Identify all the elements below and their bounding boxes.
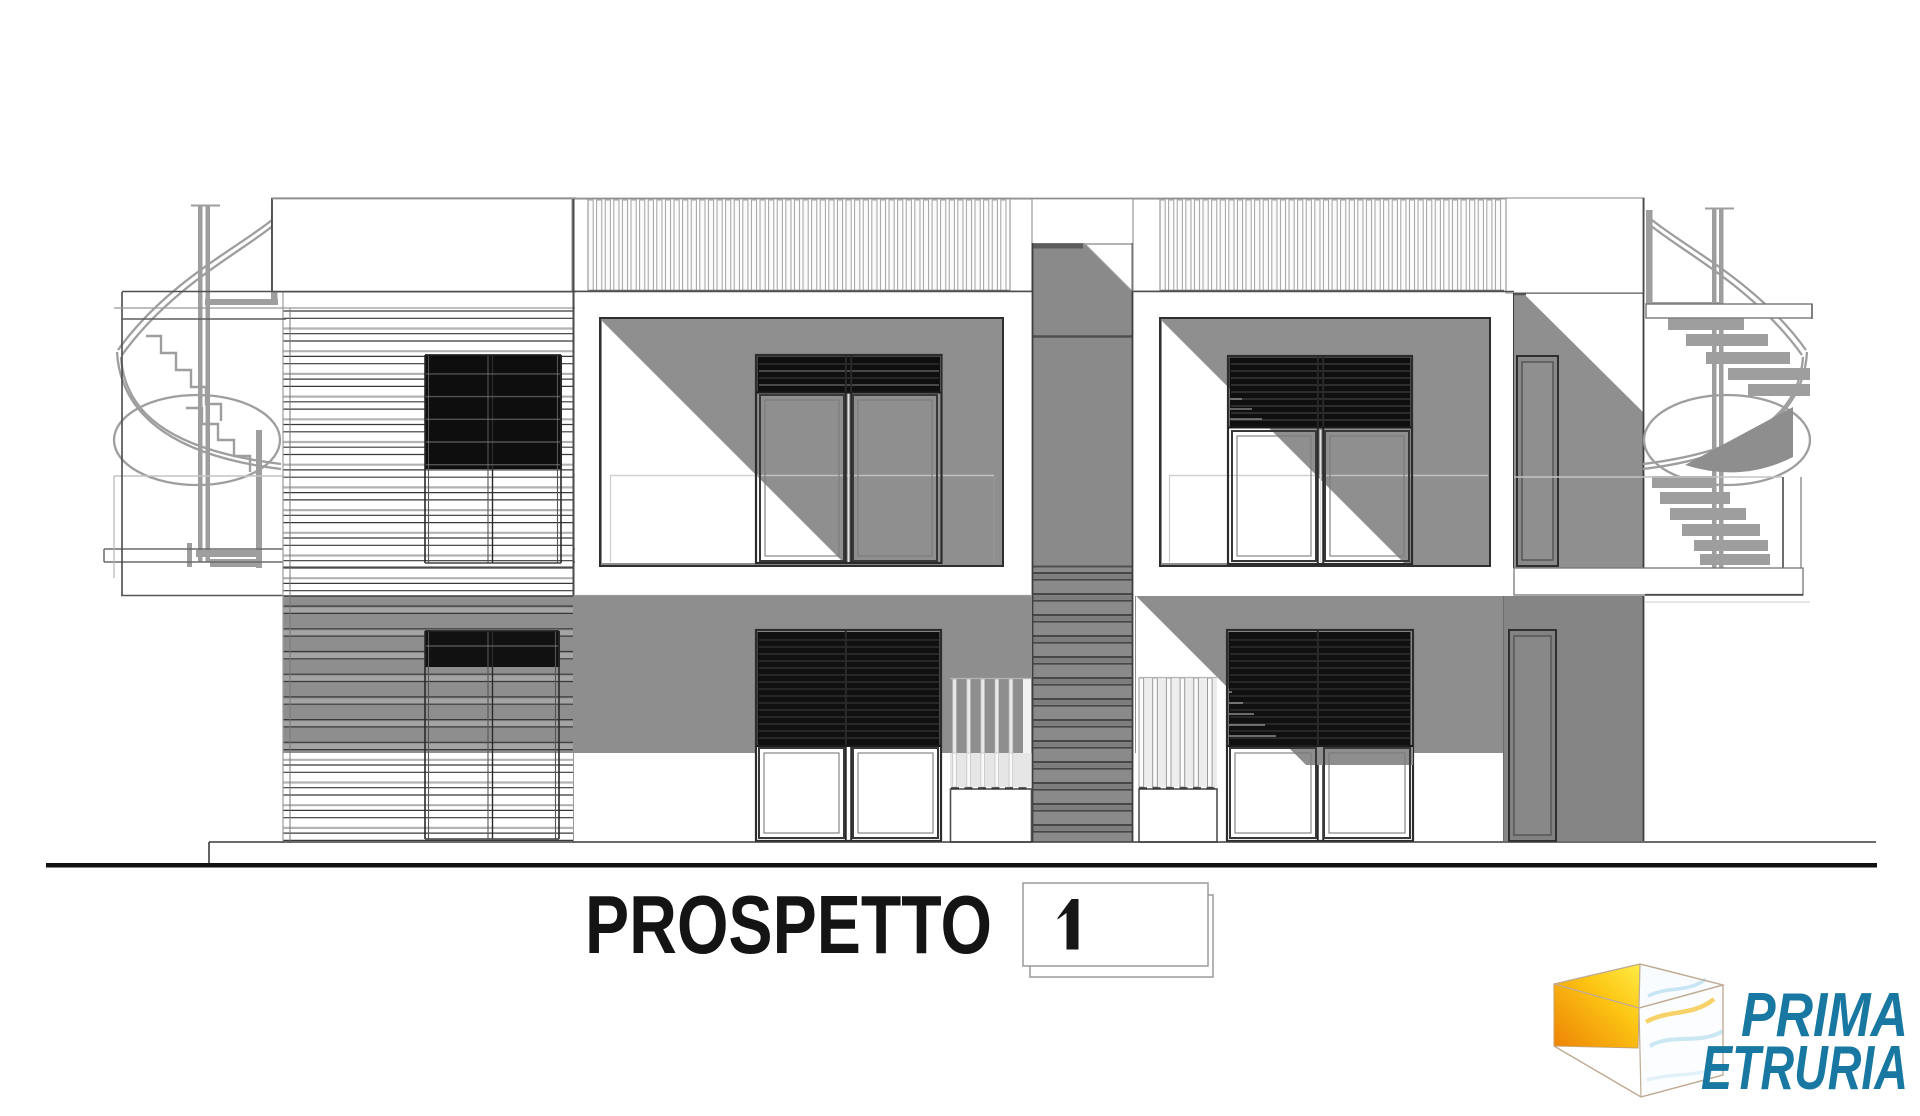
svg-text:ETRURIA: ETRURIA	[1701, 1034, 1908, 1103]
svg-text:PROSPETTO: PROSPETTO	[585, 878, 992, 971]
